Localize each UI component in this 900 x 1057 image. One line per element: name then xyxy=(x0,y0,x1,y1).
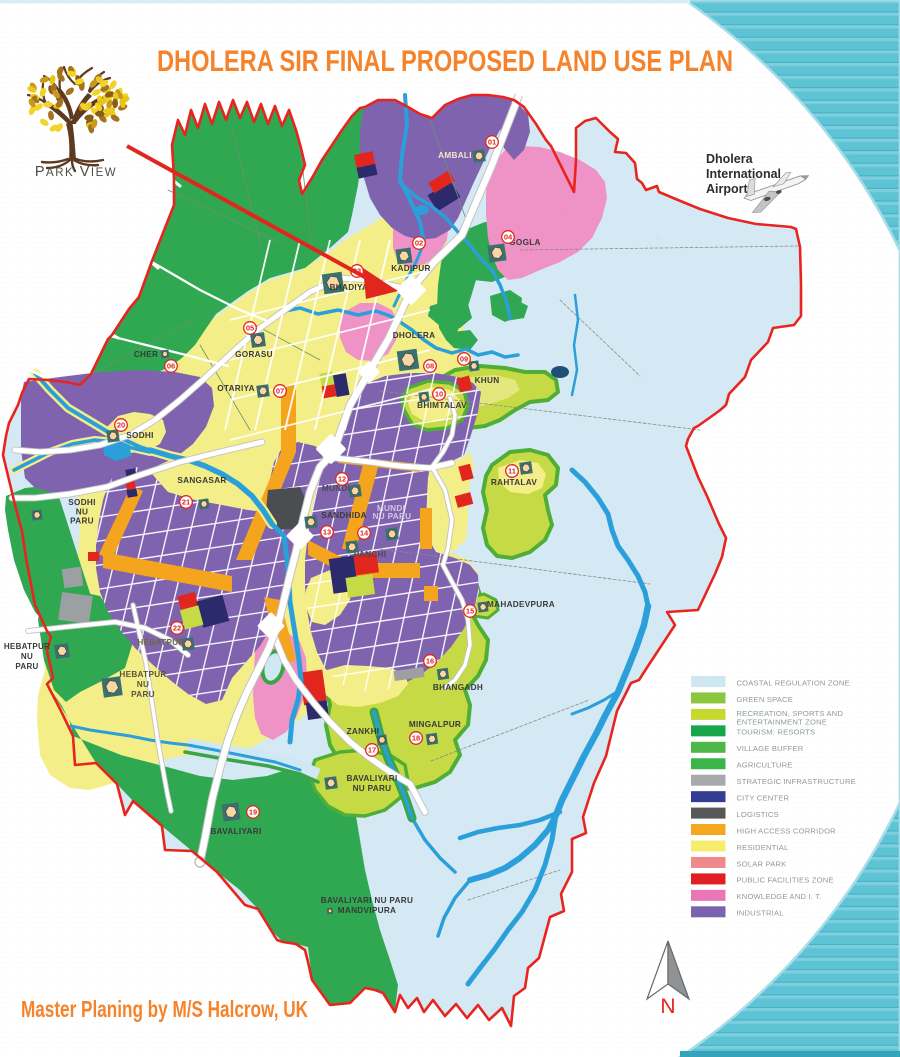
svg-text:22: 22 xyxy=(173,624,181,633)
svg-text:STRATEGIC INFRASTRUCTURE: STRATEGIC INFRASTRUCTURE xyxy=(737,777,856,786)
svg-text:08: 08 xyxy=(426,362,434,371)
svg-text:12: 12 xyxy=(338,475,346,484)
svg-text:HEBATPUR: HEBATPUR xyxy=(4,642,50,651)
svg-text:NU: NU xyxy=(21,652,33,661)
svg-text:06: 06 xyxy=(167,362,175,371)
svg-text:PARK VIEW: PARK VIEW xyxy=(35,164,117,180)
svg-text:RAHTALAV: RAHTALAV xyxy=(491,478,537,487)
svg-text:MUNDI: MUNDI xyxy=(322,484,350,493)
svg-text:NU PARU: NU PARU xyxy=(353,784,392,793)
svg-text:15: 15 xyxy=(466,607,474,616)
svg-text:VILLAGE BUFFER: VILLAGE BUFFER xyxy=(737,744,804,753)
svg-text:13: 13 xyxy=(323,528,331,537)
svg-text:BAVALIYARI NU PARU: BAVALIYARI NU PARU xyxy=(321,896,413,905)
svg-text:ENTERTAINMENT ZONE: ENTERTAINMENT ZONE xyxy=(737,718,828,727)
svg-text:BAVALIYARI: BAVALIYARI xyxy=(346,774,397,783)
svg-text:NU: NU xyxy=(137,680,149,689)
svg-text:International: International xyxy=(706,167,781,181)
svg-text:11: 11 xyxy=(508,467,516,476)
svg-text:DHOLERA SIR FINAL PROPOSED LAN: DHOLERA SIR FINAL PROPOSED LAND USE PLAN xyxy=(157,45,733,78)
svg-text:04: 04 xyxy=(504,233,513,242)
svg-text:KNOWLEDGE AND I. T.: KNOWLEDGE AND I. T. xyxy=(737,892,822,901)
svg-text:BHANGADH: BHANGADH xyxy=(433,683,483,692)
svg-text:LOGISTICS: LOGISTICS xyxy=(737,810,779,819)
svg-text:INDUSTRIAL: INDUSTRIAL xyxy=(737,909,784,918)
svg-text:02: 02 xyxy=(415,239,423,248)
svg-text:BHIMTALAV: BHIMTALAV xyxy=(417,401,467,410)
svg-text:N: N xyxy=(660,995,675,1018)
svg-text:16: 16 xyxy=(426,657,434,666)
svg-text:PARU: PARU xyxy=(131,690,155,699)
svg-text:SOLAR PARK: SOLAR PARK xyxy=(737,859,787,868)
svg-text:KHUN: KHUN xyxy=(475,376,500,385)
svg-text:SANDHIDA: SANDHIDA xyxy=(321,511,367,520)
svg-text:MANDVIPURA: MANDVIPURA xyxy=(338,906,397,915)
svg-text:14: 14 xyxy=(360,529,369,538)
svg-text:DHOLERA: DHOLERA xyxy=(393,331,436,340)
svg-text:01: 01 xyxy=(488,138,496,147)
svg-text:ZANKHI: ZANKHI xyxy=(347,727,380,736)
svg-text:HEBATPUR: HEBATPUR xyxy=(119,670,166,679)
svg-text:MUNDI: MUNDI xyxy=(377,504,405,513)
svg-text:RESIDENTIAL: RESIDENTIAL xyxy=(737,843,789,852)
svg-text:09: 09 xyxy=(460,355,468,364)
svg-text:Dholera: Dholera xyxy=(706,152,754,166)
svg-text:PARU: PARU xyxy=(15,662,38,671)
svg-text:HIGH ACCESS CORRIDOR: HIGH ACCESS CORRIDOR xyxy=(737,826,837,835)
svg-text:KADIPUR: KADIPUR xyxy=(391,264,430,273)
svg-text:CHER: CHER xyxy=(134,350,158,359)
svg-text:PARU: PARU xyxy=(70,517,94,526)
svg-text:OTARIYA: OTARIYA xyxy=(217,384,255,393)
svg-text:PUBLIC FACILITIES ZONE: PUBLIC FACILITIES ZONE xyxy=(737,876,834,885)
svg-text:COASTAL REGULATION ZONE: COASTAL REGULATION ZONE xyxy=(737,678,850,687)
svg-text:TOURISM: RESORTS: TOURISM: RESORTS xyxy=(737,728,816,737)
svg-text:BAVALIYARI: BAVALIYARI xyxy=(210,827,261,836)
svg-text:GREEN SPACE: GREEN SPACE xyxy=(737,695,794,704)
svg-text:NU PARU: NU PARU xyxy=(373,512,412,521)
svg-text:AMBALI: AMBALI xyxy=(438,151,472,160)
svg-text:21: 21 xyxy=(182,498,190,507)
svg-text:05: 05 xyxy=(246,324,254,333)
svg-text:07: 07 xyxy=(276,387,284,396)
svg-text:20: 20 xyxy=(117,421,125,430)
svg-text:19: 19 xyxy=(249,808,257,817)
svg-text:Master Planing by M/S Halcrow,: Master Planing by M/S Halcrow, UK xyxy=(21,996,308,1022)
svg-text:HEBATPUR: HEBATPUR xyxy=(137,638,184,647)
svg-text:CITY CENTER: CITY CENTER xyxy=(737,793,790,802)
svg-text:17: 17 xyxy=(368,746,376,755)
svg-text:18: 18 xyxy=(412,734,420,743)
svg-text:MAHADEVPURA: MAHADEVPURA xyxy=(487,600,555,609)
svg-text:Airport: Airport xyxy=(706,182,749,196)
svg-text:MINGALPUR: MINGALPUR xyxy=(409,720,461,729)
svg-text:10: 10 xyxy=(435,390,443,399)
svg-text:NU: NU xyxy=(76,507,88,516)
svg-text:AGRICULTURE: AGRICULTURE xyxy=(737,761,793,770)
svg-text:SODHI: SODHI xyxy=(126,431,153,440)
svg-text:SANGASAR: SANGASAR xyxy=(177,476,226,485)
svg-text:GORASU: GORASU xyxy=(235,350,273,359)
svg-text:SODHI: SODHI xyxy=(68,498,95,507)
